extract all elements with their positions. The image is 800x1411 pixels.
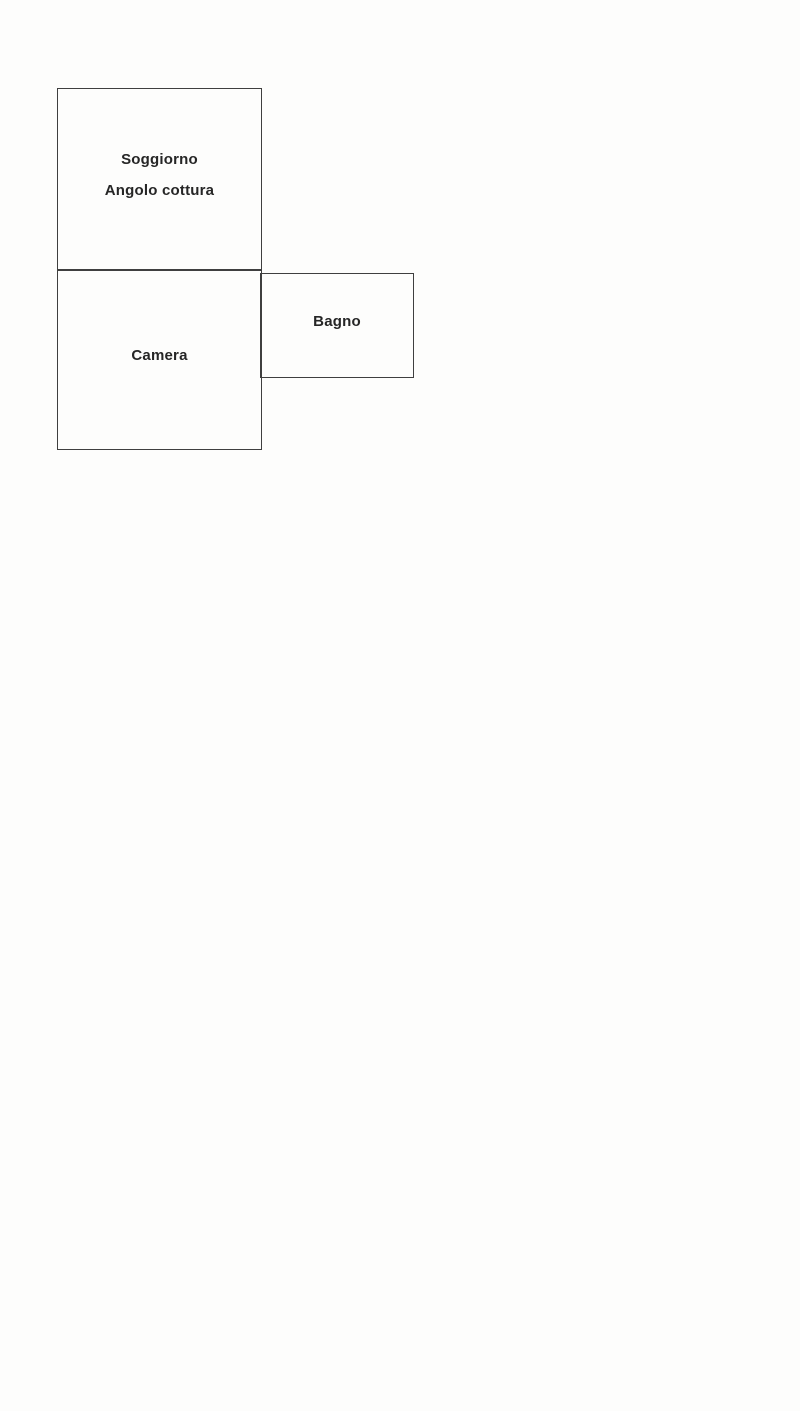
- room-soggiorno-angolo-cottura: Soggiorno Angolo cottura: [57, 88, 262, 271]
- floorplan-page: Soggiorno Angolo cottura Camera Bagno: [0, 0, 800, 1411]
- room-label-soggiorno: Soggiorno: [58, 152, 261, 167]
- room-label-camera: Camera: [58, 348, 261, 363]
- room-camera: Camera: [57, 269, 262, 450]
- room-bagno: Bagno: [260, 273, 414, 378]
- room-label-bagno: Bagno: [261, 314, 413, 329]
- room-label-angolo-cottura: Angolo cottura: [58, 183, 261, 198]
